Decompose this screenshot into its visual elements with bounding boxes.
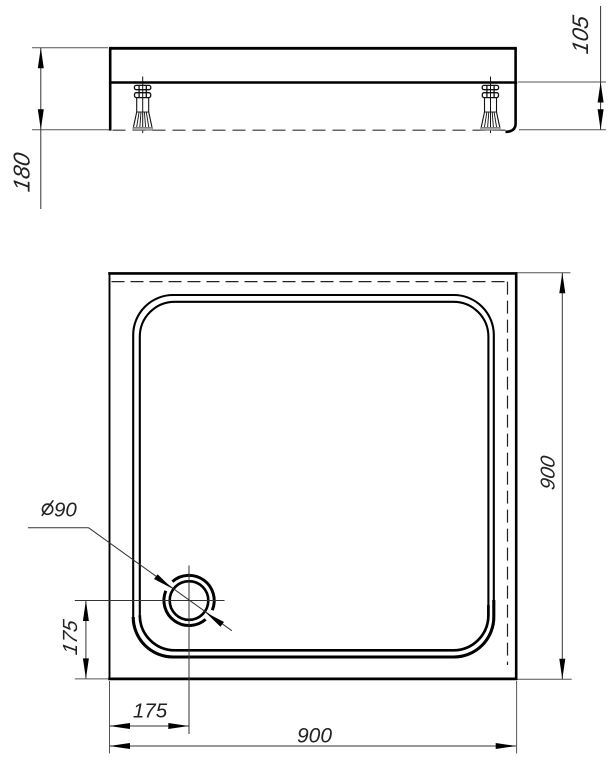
svg-text:175: 175: [59, 618, 82, 657]
svg-text:900: 900: [297, 725, 332, 748]
svg-text:105: 105: [567, 13, 593, 55]
svg-text:90: 90: [54, 499, 77, 522]
svg-text:180: 180: [9, 151, 35, 194]
svg-text:900: 900: [538, 454, 560, 492]
svg-text:175: 175: [133, 700, 168, 723]
